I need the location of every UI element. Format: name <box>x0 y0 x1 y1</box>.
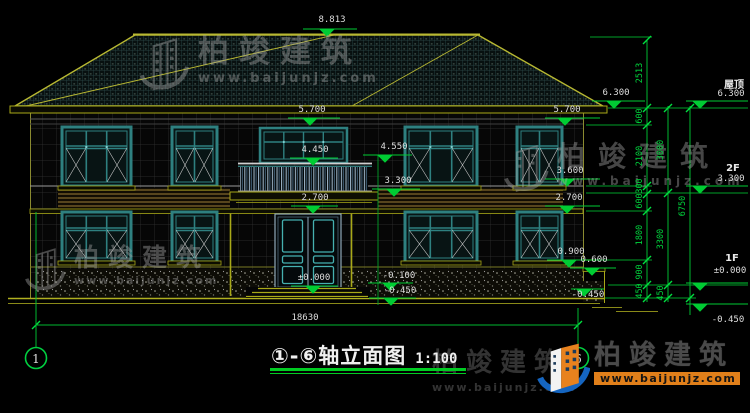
roof-level: 6.300 <box>717 89 744 99</box>
elev-3300-mid: 3.300 <box>384 176 411 186</box>
dim-2513: 2513 <box>635 63 645 83</box>
elev-neg0100: -0.100 <box>383 271 416 281</box>
title-scale: 1:100 <box>415 351 457 367</box>
watermark-logo-icon <box>138 36 190 96</box>
title-axis-range: ①-⑥ <box>271 344 318 368</box>
window-1f-right2 <box>517 212 562 262</box>
elev-zero-mid: ±0.000 <box>298 273 331 283</box>
axis-number-1: 1 <box>32 352 40 366</box>
dim-total-width: 18630 <box>291 313 318 323</box>
cad-elevation-screenshot: 8.813 6.300 屋顶 6.300 5.700 5.700 4.550 4… <box>0 0 750 413</box>
watermark-logo-icon <box>503 142 549 198</box>
window-2f-right <box>405 127 477 186</box>
elev-2700-left: 2.700 <box>301 193 328 203</box>
watermark-top: 柏竣建筑 www.baijunjz.com <box>138 36 379 96</box>
brand-logo-icon <box>536 341 590 399</box>
floor-2f-label: 2F <box>726 163 740 174</box>
elev-ridge: 8.813 <box>318 15 345 25</box>
elev-4550: 4.550 <box>380 142 407 152</box>
dim-3000: 3000 <box>656 140 666 160</box>
balcony-railing <box>238 164 372 192</box>
floor-1f-level: ±0.000 <box>714 266 747 276</box>
watermark-brand: 柏竣建筑 <box>198 36 379 69</box>
floor-below-grade: -0.450 <box>712 315 745 325</box>
dim-450b: 450 <box>656 285 666 300</box>
brand-logo: 柏竣建筑 www.baijunjz.com <box>536 341 740 399</box>
dim-600b: 600 <box>635 193 645 208</box>
elev-5700-right: 5.700 <box>553 105 580 115</box>
elev-neg0450-mid: -0.450 <box>384 286 417 296</box>
watermark-url: www.baijunjz.com <box>557 174 744 188</box>
title-text: 轴立面图 <box>318 344 406 368</box>
window-1f-right <box>405 212 477 262</box>
dim-300: 300 <box>635 178 645 193</box>
watermark-brand: 柏竣建筑 <box>557 142 744 171</box>
drawing-title: ①-⑥轴立面图1:100 <box>271 340 457 370</box>
dim-6750: 6750 <box>678 196 688 216</box>
dim-3300: 3300 <box>656 229 666 249</box>
floor-2f-level: 3.300 <box>717 174 744 184</box>
title-underline-thin <box>270 373 466 374</box>
watermark-right: 柏竣建筑 www.baijunjz.com <box>503 142 744 198</box>
window-2f-left2 <box>172 127 217 186</box>
elev-4450: 4.450 <box>301 145 328 155</box>
title-underline-thick <box>270 368 466 371</box>
dim-900: 900 <box>635 264 645 279</box>
brand-logo-url: www.baijunjz.com <box>594 372 740 385</box>
dim-2100: 2100 <box>635 146 645 166</box>
elev-3600: 3.600 <box>556 166 583 176</box>
watermark-logo-icon <box>24 245 66 297</box>
watermark-bottom-left: 柏竣建筑 www.baijunjz.com <box>24 245 218 297</box>
window-2f-left <box>62 127 131 186</box>
elev-neg0450-right: -0.450 <box>572 290 605 300</box>
elev-5700-left: 5.700 <box>298 105 325 115</box>
brand-logo-text: 柏竣建筑 <box>594 341 740 371</box>
elev-eave: 6.300 <box>602 88 629 98</box>
dim-600a: 600 <box>635 108 645 123</box>
dim-1800: 1800 <box>635 225 645 245</box>
dim-450a: 450 <box>635 283 645 298</box>
elev-0600: 0.600 <box>580 255 607 265</box>
watermark-url: www.baijunjz.com <box>74 274 218 287</box>
floor-1f-label: 1F <box>725 253 739 264</box>
watermark-brand: 柏竣建筑 <box>74 245 218 271</box>
watermark-url: www.baijunjz.com <box>198 71 379 86</box>
elev-2700-right: 2.700 <box>555 193 582 203</box>
